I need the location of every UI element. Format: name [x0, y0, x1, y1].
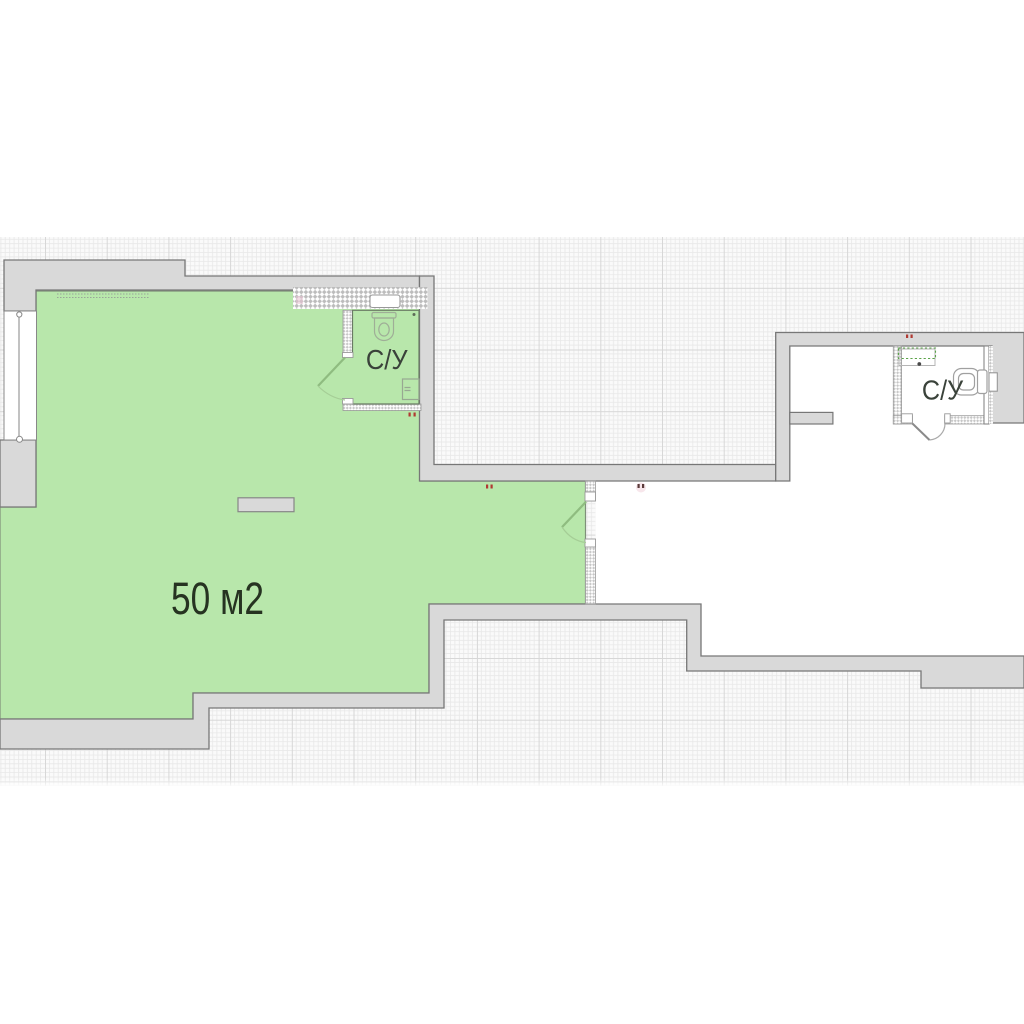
svg-text:С/У: С/У: [366, 344, 408, 375]
svg-text:50 м2: 50 м2: [171, 573, 264, 624]
svg-text:С/У: С/У: [922, 375, 963, 406]
